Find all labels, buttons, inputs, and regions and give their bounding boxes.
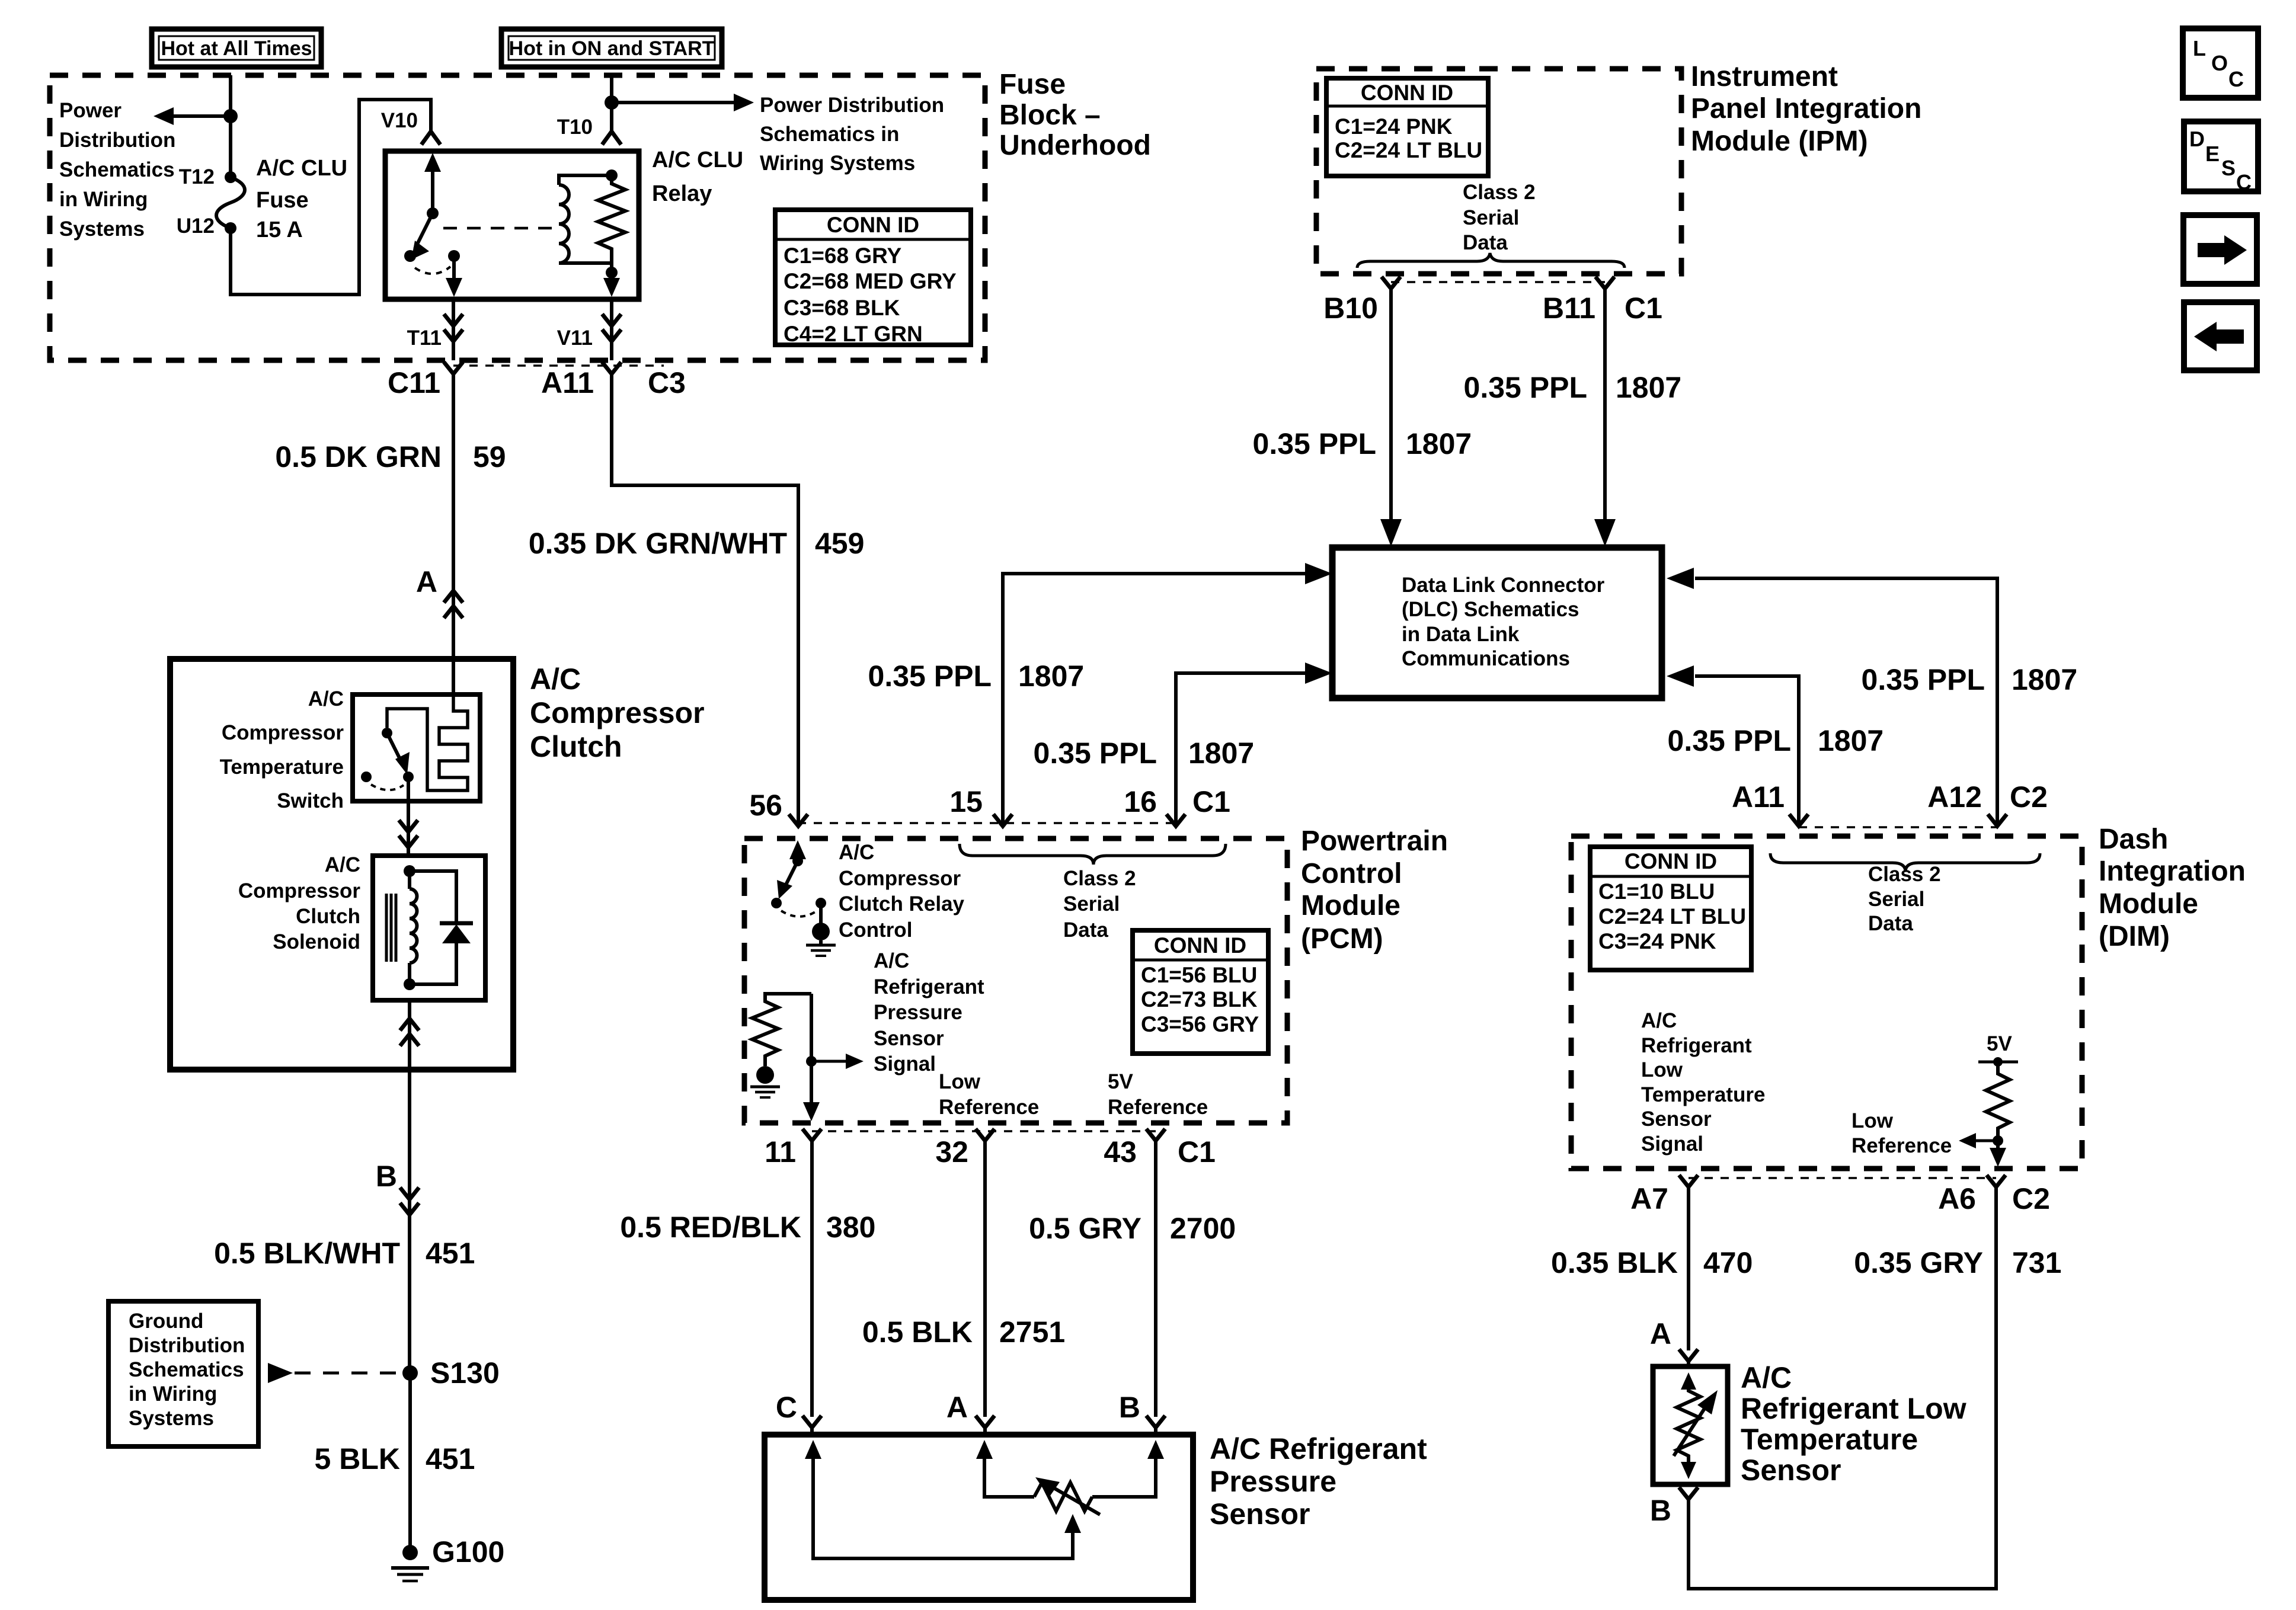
svg-text:C1: C1 [1192, 785, 1230, 818]
svg-text:A/C CLU: A/C CLU [256, 156, 347, 181]
svg-text:5V: 5V [1987, 1032, 2012, 1055]
svg-text:1807: 1807 [1018, 660, 1084, 693]
svg-text:Powertrain: Powertrain [1301, 825, 1448, 857]
svg-text:Sensor: Sensor [1210, 1497, 1310, 1531]
svg-text:in Wiring: in Wiring [59, 188, 148, 211]
svg-text:U12: U12 [177, 215, 215, 238]
svg-text:0.5 BLK/WHT: 0.5 BLK/WHT [214, 1237, 400, 1270]
svg-text:11: 11 [765, 1135, 796, 1169]
svg-text:A6: A6 [1938, 1182, 1976, 1215]
svg-text:B10: B10 [1323, 292, 1378, 325]
svg-text:C2: C2 [2010, 780, 2048, 814]
svg-text:Signal: Signal [874, 1052, 936, 1076]
svg-text:Module: Module [2099, 888, 2198, 920]
svg-text:Relay: Relay [652, 181, 712, 206]
svg-text:0.35 PPL: 0.35 PPL [1668, 724, 1791, 757]
svg-text:Ground: Ground [129, 1310, 203, 1333]
svg-text:Clutch: Clutch [296, 905, 360, 928]
svg-text:D: D [2189, 127, 2205, 151]
svg-text:731: 731 [2012, 1246, 2061, 1279]
svg-text:C: C [2236, 170, 2252, 194]
svg-text:C11: C11 [388, 366, 440, 399]
svg-text:C: C [2228, 67, 2244, 91]
svg-text:Systems: Systems [129, 1407, 214, 1430]
svg-text:1807: 1807 [2012, 663, 2077, 696]
svg-text:Underhood: Underhood [999, 130, 1151, 161]
svg-text:32: 32 [935, 1135, 968, 1169]
svg-text:S: S [2221, 156, 2236, 180]
svg-text:(DIM): (DIM) [2099, 921, 2170, 952]
svg-text:0.35 DK GRN/WHT: 0.35 DK GRN/WHT [529, 527, 787, 560]
svg-text:Hot in ON and START: Hot in ON and START [509, 37, 715, 60]
svg-text:Fuse: Fuse [999, 69, 1066, 100]
svg-text:Solenoid: Solenoid [273, 930, 360, 953]
svg-text:59: 59 [473, 440, 506, 473]
svg-text:A/C: A/C [325, 853, 360, 876]
svg-text:Low: Low [1851, 1109, 1894, 1132]
svg-text:Class 2: Class 2 [1463, 181, 1536, 204]
svg-text:Data Link Connector: Data Link Connector [1402, 574, 1605, 597]
svg-text:Control: Control [839, 918, 912, 942]
svg-text:T12: T12 [179, 165, 215, 188]
svg-text:C1=56 BLU: C1=56 BLU [1141, 963, 1257, 987]
svg-text:2700: 2700 [1170, 1212, 1236, 1245]
svg-text:Compressor: Compressor [839, 867, 961, 890]
svg-text:Wiring Systems: Wiring Systems [760, 152, 915, 175]
svg-text:C3=24 PNK: C3=24 PNK [1598, 929, 1716, 953]
svg-text:451: 451 [426, 1237, 475, 1270]
svg-text:Serial: Serial [1463, 206, 1519, 229]
svg-text:Reference: Reference [1108, 1096, 1208, 1119]
svg-text:Sensor: Sensor [874, 1027, 944, 1050]
svg-text:in Data Link: in Data Link [1402, 623, 1520, 646]
svg-text:Sensor: Sensor [1641, 1108, 1712, 1131]
svg-text:Fuse: Fuse [256, 188, 309, 213]
svg-text:Integration: Integration [2099, 856, 2246, 887]
svg-text:B: B [376, 1160, 397, 1193]
svg-text:Class 2: Class 2 [1063, 867, 1136, 890]
svg-text:S130: S130 [430, 1356, 500, 1390]
svg-text:0.5 DK GRN: 0.5 DK GRN [275, 440, 442, 473]
svg-text:A: A [416, 565, 437, 598]
svg-text:Serial: Serial [1063, 892, 1120, 916]
svg-text:Schematics: Schematics [59, 158, 175, 181]
svg-text:C3=56 GRY: C3=56 GRY [1141, 1012, 1259, 1036]
svg-text:Temperature: Temperature [1741, 1423, 1918, 1456]
svg-text:16: 16 [1124, 785, 1157, 818]
svg-text:0.35 PPL: 0.35 PPL [1862, 663, 1985, 696]
svg-text:Compressor: Compressor [222, 721, 344, 744]
svg-text:A/C: A/C [839, 841, 874, 864]
svg-text:5V: 5V [1108, 1070, 1133, 1093]
svg-text:0.35 PPL: 0.35 PPL [1253, 427, 1376, 460]
svg-text:0.5 RED/BLK: 0.5 RED/BLK [620, 1211, 801, 1244]
svg-text:V10: V10 [381, 109, 418, 132]
svg-text:A7: A7 [1630, 1182, 1668, 1215]
svg-text:G100: G100 [432, 1535, 504, 1569]
svg-text:Low: Low [939, 1070, 981, 1093]
svg-text:Data: Data [1463, 231, 1508, 254]
svg-text:C: C [776, 1391, 797, 1424]
svg-text:A/C: A/C [308, 687, 344, 710]
svg-text:Block –: Block – [999, 100, 1101, 131]
svg-text:A: A [946, 1391, 968, 1424]
svg-text:T11: T11 [407, 327, 442, 350]
svg-text:A/C: A/C [874, 949, 909, 972]
svg-text:B: B [1650, 1494, 1671, 1527]
svg-text:C1=68 GRY: C1=68 GRY [784, 244, 901, 268]
svg-text:C3=68 BLK: C3=68 BLK [784, 296, 900, 320]
svg-text:Low: Low [1641, 1058, 1683, 1081]
svg-text:A/C Refrigerant: A/C Refrigerant [1210, 1432, 1427, 1465]
svg-text:A12: A12 [1927, 780, 1982, 814]
svg-text:Pressure: Pressure [874, 1001, 962, 1024]
svg-text:Clutch: Clutch [530, 730, 622, 763]
svg-text:43: 43 [1104, 1135, 1137, 1169]
svg-text:Power Distribution: Power Distribution [760, 94, 944, 117]
svg-text:A: A [1650, 1317, 1671, 1350]
svg-text:380: 380 [826, 1211, 875, 1244]
svg-text:0.35 BLK: 0.35 BLK [1551, 1246, 1678, 1279]
svg-text:Data: Data [1868, 912, 1913, 935]
svg-text:459: 459 [815, 527, 864, 560]
svg-text:C1: C1 [1625, 292, 1662, 325]
svg-text:B11: B11 [1543, 292, 1595, 325]
svg-text:Module: Module [1301, 890, 1400, 921]
svg-text:Compressor: Compressor [238, 879, 361, 902]
svg-text:1807: 1807 [1188, 737, 1254, 770]
svg-text:15 A: 15 A [256, 217, 303, 242]
svg-text:Temperature: Temperature [1641, 1083, 1765, 1106]
svg-text:15: 15 [949, 785, 983, 818]
svg-text:Panel Integration: Panel Integration [1691, 93, 1921, 124]
svg-text:(PCM): (PCM) [1301, 923, 1383, 955]
svg-text:470: 470 [1703, 1246, 1753, 1279]
svg-text:Compressor: Compressor [530, 696, 705, 729]
svg-text:A/C: A/C [1741, 1361, 1792, 1394]
svg-text:CONN ID: CONN ID [827, 213, 919, 237]
svg-text:Pressure: Pressure [1210, 1465, 1336, 1498]
svg-text:Module (IPM): Module (IPM) [1691, 126, 1868, 157]
svg-text:Refrigerant Low: Refrigerant Low [1741, 1392, 1966, 1425]
svg-text:Temperature: Temperature [220, 756, 344, 779]
svg-text:Power: Power [59, 99, 121, 122]
svg-text:Refrigerant: Refrigerant [874, 975, 984, 998]
svg-text:V11: V11 [557, 327, 593, 350]
svg-text:T10: T10 [557, 116, 593, 139]
svg-text:0.35 GRY: 0.35 GRY [1854, 1246, 1983, 1279]
svg-text:C4=2 LT GRN: C4=2 LT GRN [784, 322, 923, 346]
svg-text:C2=68 MED GRY: C2=68 MED GRY [784, 269, 957, 293]
svg-text:Distribution: Distribution [59, 129, 175, 152]
svg-text:Data: Data [1063, 918, 1108, 942]
svg-text:Serial: Serial [1868, 888, 1924, 911]
svg-text:0.5 GRY: 0.5 GRY [1029, 1212, 1141, 1245]
svg-text:Dash: Dash [2099, 824, 2168, 855]
svg-text:C2=24 LT BLU: C2=24 LT BLU [1598, 904, 1746, 929]
svg-text:E: E [2205, 142, 2220, 166]
svg-text:CONN ID: CONN ID [1361, 81, 1453, 105]
svg-text:Signal: Signal [1641, 1132, 1703, 1156]
svg-text:Instrument: Instrument [1691, 61, 1838, 92]
svg-text:Sensor: Sensor [1741, 1454, 1841, 1487]
svg-text:451: 451 [426, 1442, 475, 1475]
svg-text:5 BLK: 5 BLK [315, 1442, 400, 1475]
svg-text:Reference: Reference [939, 1096, 1039, 1119]
svg-text:C2=73 BLK: C2=73 BLK [1141, 987, 1258, 1012]
svg-text:A11: A11 [1732, 780, 1785, 814]
svg-text:56: 56 [749, 789, 782, 822]
svg-text:Schematics: Schematics [129, 1358, 244, 1381]
svg-text:Clutch Relay: Clutch Relay [839, 892, 965, 916]
svg-text:0.35 PPL: 0.35 PPL [1464, 371, 1587, 404]
svg-text:C1: C1 [1178, 1135, 1216, 1169]
svg-text:Reference: Reference [1851, 1134, 1952, 1157]
svg-text:Control: Control [1301, 858, 1402, 889]
svg-text:B: B [1119, 1391, 1140, 1424]
svg-text:A11: A11 [541, 366, 594, 399]
svg-text:CONN ID: CONN ID [1154, 933, 1246, 958]
svg-text:(DLC) Schematics: (DLC) Schematics [1402, 598, 1579, 621]
svg-text:Systems: Systems [59, 217, 145, 241]
svg-text:Schematics in: Schematics in [760, 123, 899, 146]
svg-text:A/C: A/C [530, 662, 581, 696]
svg-text:C2: C2 [2012, 1182, 2050, 1215]
svg-text:Communications: Communications [1402, 647, 1570, 670]
svg-text:O: O [2211, 51, 2228, 75]
svg-text:CONN ID: CONN ID [1625, 849, 1717, 873]
svg-text:C1=10 BLU: C1=10 BLU [1598, 879, 1715, 904]
svg-text:0.35 PPL: 0.35 PPL [1034, 737, 1157, 770]
svg-text:A/C: A/C [1641, 1009, 1677, 1032]
svg-text:Refrigerant: Refrigerant [1641, 1034, 1752, 1057]
svg-text:Switch: Switch [277, 789, 344, 812]
svg-text:C1=24 PNK: C1=24 PNK [1335, 114, 1453, 139]
svg-text:L: L [2193, 36, 2206, 60]
svg-text:1807: 1807 [1616, 371, 1681, 404]
svg-text:1807: 1807 [1406, 427, 1472, 460]
svg-text:C3: C3 [648, 366, 686, 399]
svg-text:in Wiring: in Wiring [129, 1382, 217, 1406]
svg-text:A/C CLU: A/C CLU [652, 148, 743, 172]
svg-text:2751: 2751 [999, 1315, 1065, 1349]
svg-text:Distribution: Distribution [129, 1334, 245, 1357]
svg-text:0.35 PPL: 0.35 PPL [868, 660, 992, 693]
svg-text:0.5 BLK: 0.5 BLK [862, 1315, 973, 1349]
svg-text:1807: 1807 [1818, 724, 1884, 757]
svg-text:Hot at All Times: Hot at All Times [161, 37, 312, 60]
svg-text:C2=24 LT BLU: C2=24 LT BLU [1335, 138, 1482, 162]
